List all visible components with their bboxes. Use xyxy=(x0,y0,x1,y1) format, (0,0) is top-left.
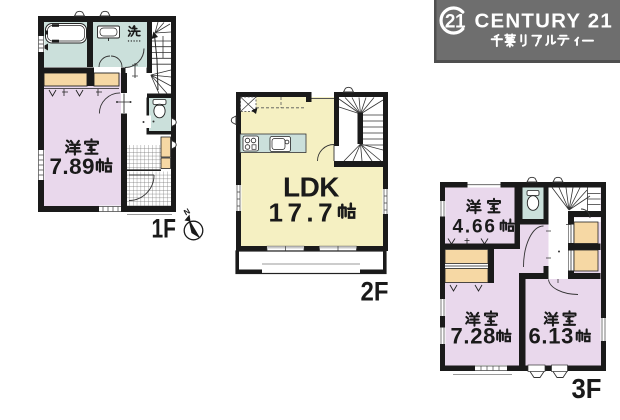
svg-text:3F: 3F xyxy=(572,373,602,404)
svg-text:CENTURY 21: CENTURY 21 xyxy=(475,10,613,33)
svg-text:1F: 1F xyxy=(152,213,177,243)
svg-text:21: 21 xyxy=(445,12,466,33)
svg-text:7.89: 7.89 xyxy=(50,154,95,179)
svg-text:7.28: 7.28 xyxy=(451,324,497,349)
svg-text:6.13: 6.13 xyxy=(529,324,575,349)
svg-text:4.66: 4.66 xyxy=(453,217,497,238)
svg-text:17.7: 17.7 xyxy=(269,198,338,228)
svg-text:2F: 2F xyxy=(361,277,389,307)
